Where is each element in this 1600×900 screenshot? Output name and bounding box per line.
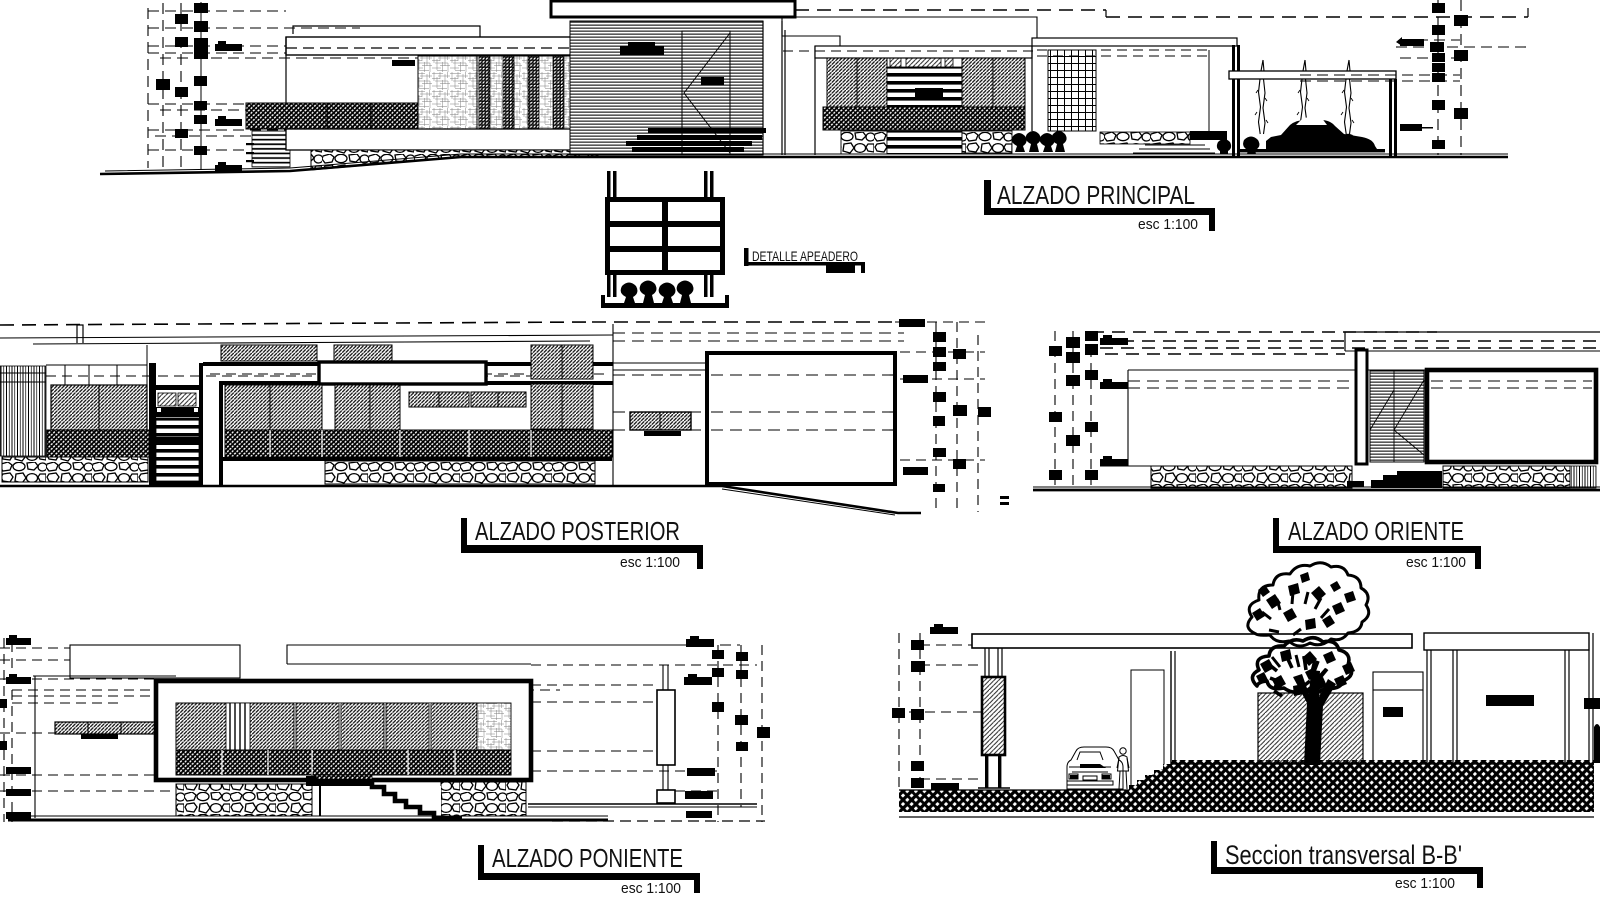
svg-text:ALZADO ORIENTE: ALZADO ORIENTE (1288, 516, 1464, 546)
svg-text:ALZADO PONIENTE: ALZADO PONIENTE (492, 843, 683, 873)
svg-text:esc 1:100: esc 1:100 (1138, 216, 1198, 233)
svg-text:ALZADO POSTERIOR: ALZADO POSTERIOR (475, 516, 680, 546)
svg-text:DETALLE APEADERO: DETALLE APEADERO (752, 248, 858, 264)
svg-text:esc 1:100: esc 1:100 (620, 554, 680, 571)
svg-text:ALZADO PRINCIPAL: ALZADO PRINCIPAL (997, 180, 1195, 210)
svg-text:esc 1:100: esc 1:100 (1406, 554, 1466, 571)
svg-text:Seccion transversal B-B': Seccion transversal B-B' (1225, 840, 1462, 870)
svg-text:esc 1:100: esc 1:100 (621, 880, 681, 897)
svg-text:esc 1:100: esc 1:100 (1395, 875, 1455, 892)
